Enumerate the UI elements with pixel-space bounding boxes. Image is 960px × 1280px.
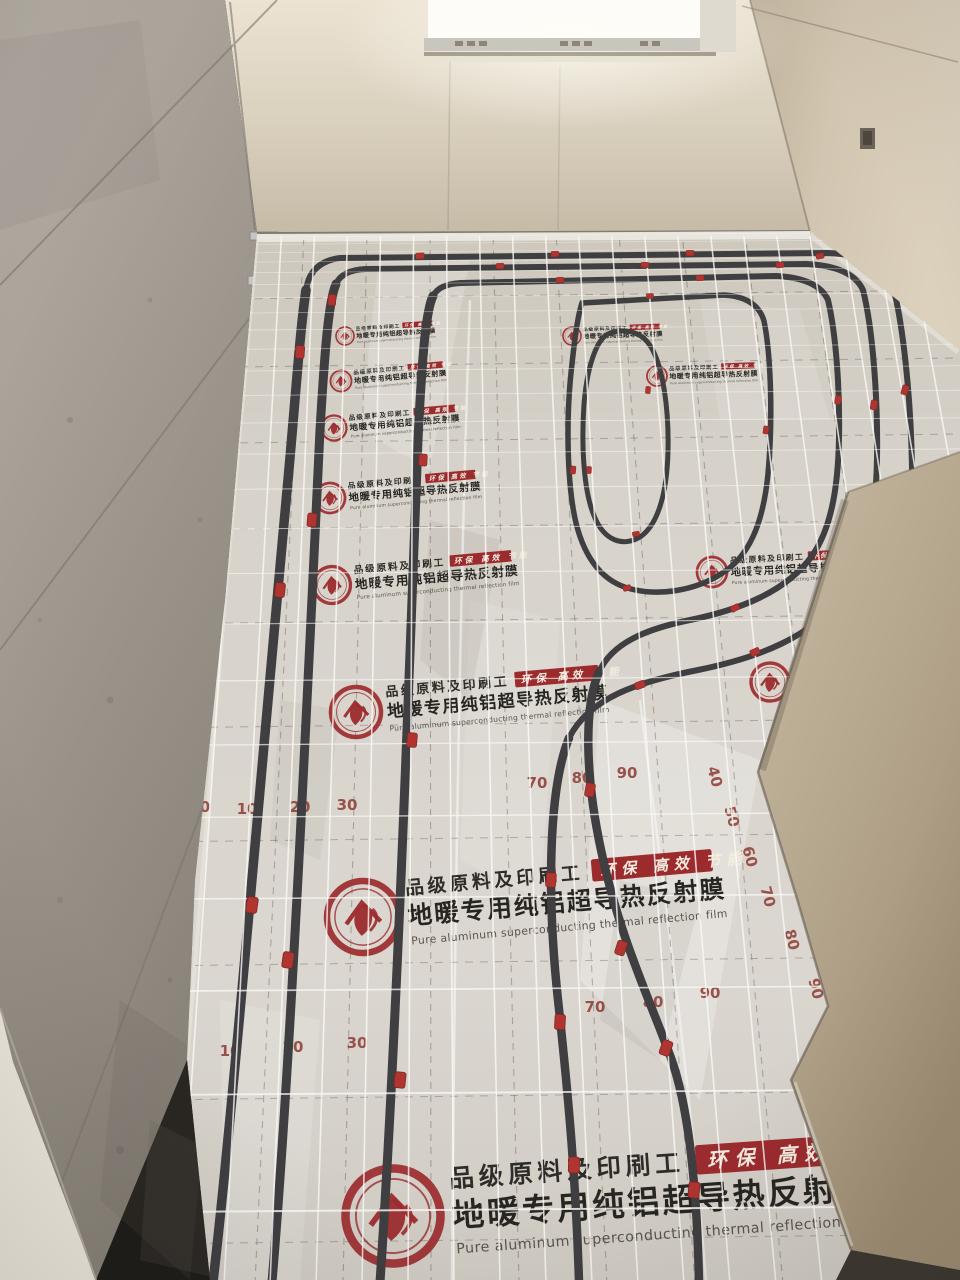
vignette xyxy=(0,0,960,1280)
underfloor-heating-scene: 品级原料及印刷工 环保 高效 节能 地暖专用纯铝超导热反射膜 Pure alum… xyxy=(0,0,960,1280)
room-photo: 品级原料及印刷工 环保 高效 节能 地暖专用纯铝超导热反射膜 Pure alum… xyxy=(0,0,960,1280)
